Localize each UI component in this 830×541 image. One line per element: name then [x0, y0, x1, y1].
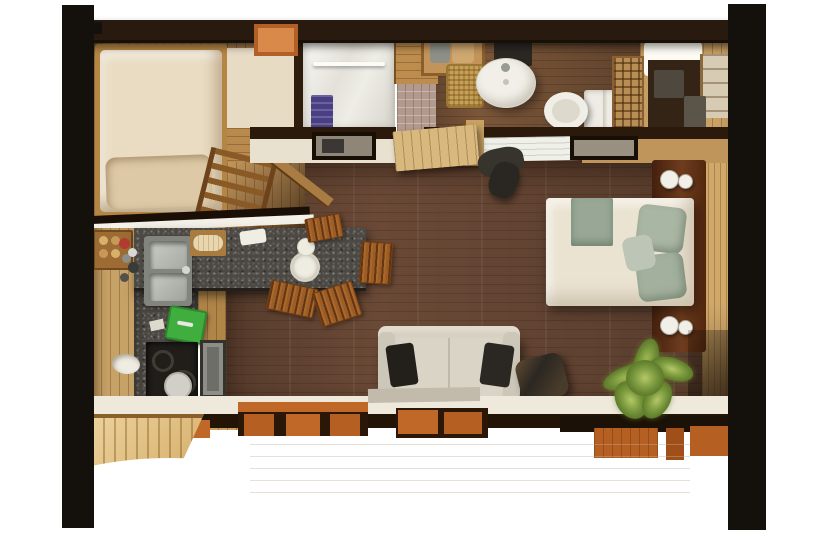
floor-plan-render: [0, 0, 830, 541]
shower-towel-bar: [313, 62, 385, 66]
jar: [111, 249, 120, 258]
jar: [99, 236, 108, 245]
carved-screen: [612, 56, 644, 138]
paper-towel-holder: [190, 230, 226, 256]
toilet: [544, 88, 620, 132]
sink-basin: [149, 273, 187, 301]
bed-green-throw: [571, 198, 613, 246]
grey-sill: [368, 387, 480, 403]
potted-fern: [600, 336, 694, 420]
paper-towel-roll: [193, 235, 223, 251]
sofa-pillow-dark-left: [385, 342, 419, 387]
sink-basin: [149, 241, 187, 269]
drain: [503, 79, 509, 85]
faucet: [501, 63, 510, 72]
left-beam-cap: [88, 22, 102, 34]
burner: [152, 350, 174, 372]
joist-beam: [238, 402, 368, 412]
picture-frame-right: [570, 136, 638, 160]
bath-tile-wall: [397, 84, 436, 132]
left-roof-beam: [62, 5, 94, 528]
joist-grid: [396, 408, 488, 438]
cooktop: [146, 342, 198, 402]
picture-frame-left: [312, 132, 376, 160]
joist: [244, 414, 274, 436]
orange-skylight: [254, 24, 298, 56]
oven-glass: [207, 347, 219, 391]
oven: [200, 340, 226, 398]
right-roof-beam: [728, 4, 766, 530]
bathroom-door-open: [392, 124, 479, 171]
entry-cabinet: [684, 96, 706, 128]
knife: [177, 320, 193, 327]
sink-faucet: [182, 266, 190, 274]
kitchen-sink: [144, 236, 192, 306]
joist: [330, 414, 360, 436]
joist: [444, 412, 482, 434]
joist: [286, 414, 320, 436]
jar: [99, 249, 108, 258]
bedside-lamp: [660, 316, 679, 335]
joist: [398, 410, 438, 434]
siding-lines: [250, 444, 690, 500]
picture-art: [322, 139, 344, 153]
jar-shelf: [93, 230, 133, 270]
bedside-lamp: [660, 170, 679, 189]
joist-grid: [238, 402, 368, 436]
entry-appliance: [654, 70, 684, 98]
bedside-lamp: [678, 174, 693, 189]
canned-goods: [119, 238, 130, 249]
bar-plate-large: [290, 252, 320, 282]
toilet-seat: [552, 99, 580, 123]
pedestal-washbasin: [476, 58, 536, 108]
purple-towel: [311, 95, 333, 131]
truss-orange: [690, 426, 728, 456]
sofa-pillow-dark-right: [479, 342, 515, 388]
roof-edge: [76, 20, 732, 43]
fern-center: [626, 360, 664, 396]
dining-chair-right: [359, 241, 394, 285]
